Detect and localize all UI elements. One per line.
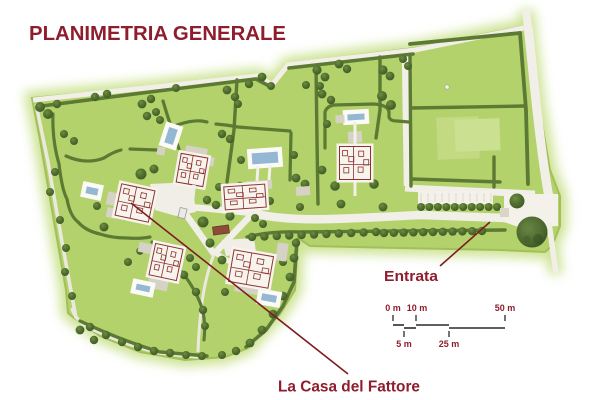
svg-text:0 m: 0 m bbox=[385, 303, 401, 313]
svg-text:10 m: 10 m bbox=[407, 303, 428, 313]
svg-text:25 m: 25 m bbox=[439, 339, 460, 349]
svg-text:La Casa del Fattore: La Casa del Fattore bbox=[278, 379, 420, 396]
svg-text:50 m: 50 m bbox=[495, 303, 516, 313]
svg-text:Entrata: Entrata bbox=[384, 269, 439, 285]
svg-text:PLANIMETRIA GENERALE: PLANIMETRIA GENERALE bbox=[29, 22, 286, 45]
svg-text:5 m: 5 m bbox=[396, 339, 412, 349]
